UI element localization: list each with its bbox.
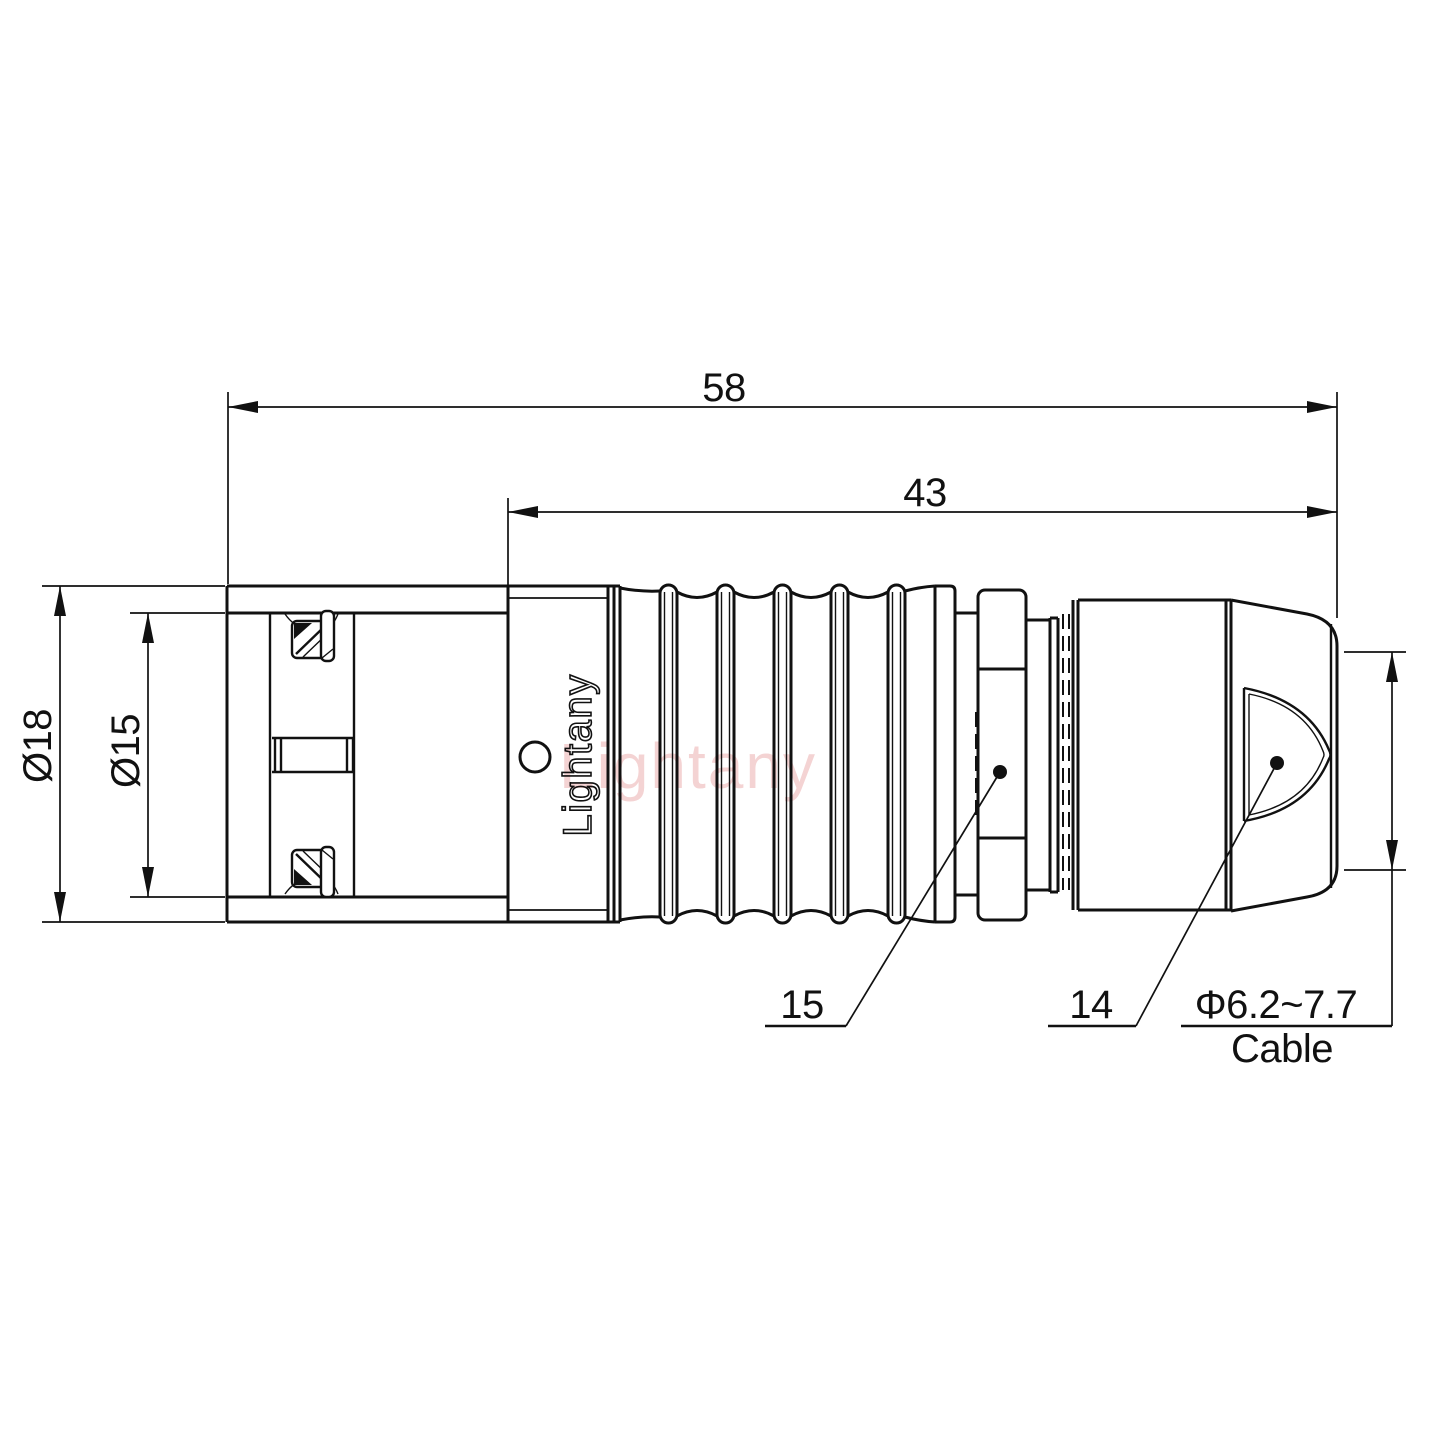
dim-coupling-diameter: Ø15 (104, 613, 225, 897)
half-shell-groove (272, 738, 354, 772)
callout-15-value: 15 (780, 983, 824, 1027)
top-latch (285, 611, 338, 661)
connector-technical-drawing: 58 43 Ø18 Ø15 Φ6.2~7.7 Cable (0, 0, 1440, 1440)
dim-body-length-value: 43 (903, 471, 947, 515)
rear-hardware (955, 590, 1337, 920)
bottom-latch (285, 847, 338, 897)
cable-diameter-value: Φ6.2~7.7 (1195, 983, 1357, 1027)
release-hole (520, 742, 550, 772)
dim-overall-length: 58 (228, 366, 1337, 618)
cable-entry-cone (1231, 600, 1337, 911)
dim-coupling-diameter-value: Ø15 (104, 714, 148, 788)
dim-body-length: 43 (508, 471, 1337, 585)
cable-word: Cable (1231, 1027, 1333, 1071)
dim-overall-length-value: 58 (702, 366, 746, 410)
dim-outer-diameter-value: Ø18 (16, 709, 60, 783)
coupling-nut (978, 590, 1026, 920)
brand-watermark: Lightany (559, 730, 817, 802)
dim-cable-diameter: Φ6.2~7.7 Cable (1181, 652, 1406, 1071)
callout-14-value: 14 (1069, 983, 1113, 1027)
drawing-canvas: 58 43 Ø18 Ø15 Φ6.2~7.7 Cable (0, 0, 1440, 1440)
